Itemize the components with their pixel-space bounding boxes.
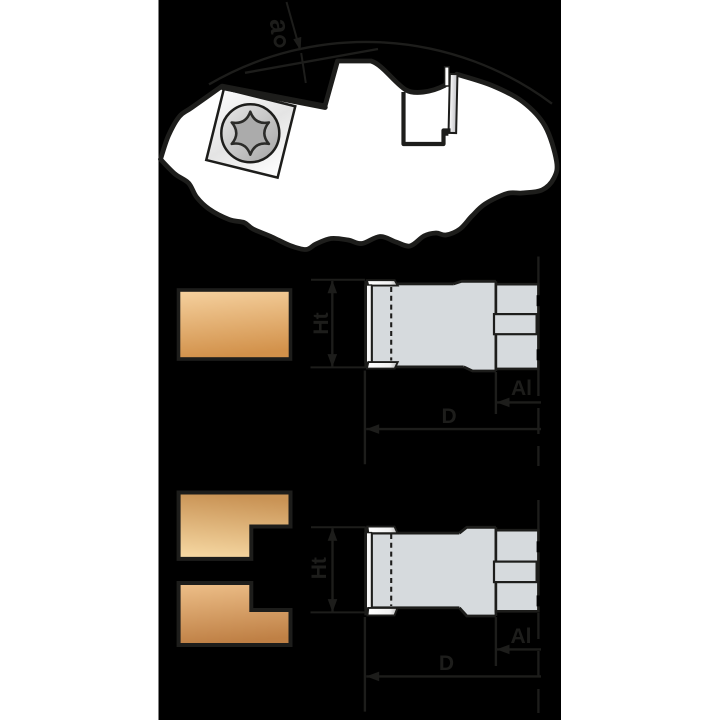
svg-text:D: D bbox=[442, 405, 457, 428]
svg-text:D: D bbox=[439, 652, 454, 675]
svg-text:Ht: Ht bbox=[308, 557, 331, 579]
svg-text:Al: Al bbox=[511, 625, 532, 648]
svg-text:Al: Al bbox=[511, 377, 532, 400]
svg-text:Ht: Ht bbox=[310, 312, 333, 334]
